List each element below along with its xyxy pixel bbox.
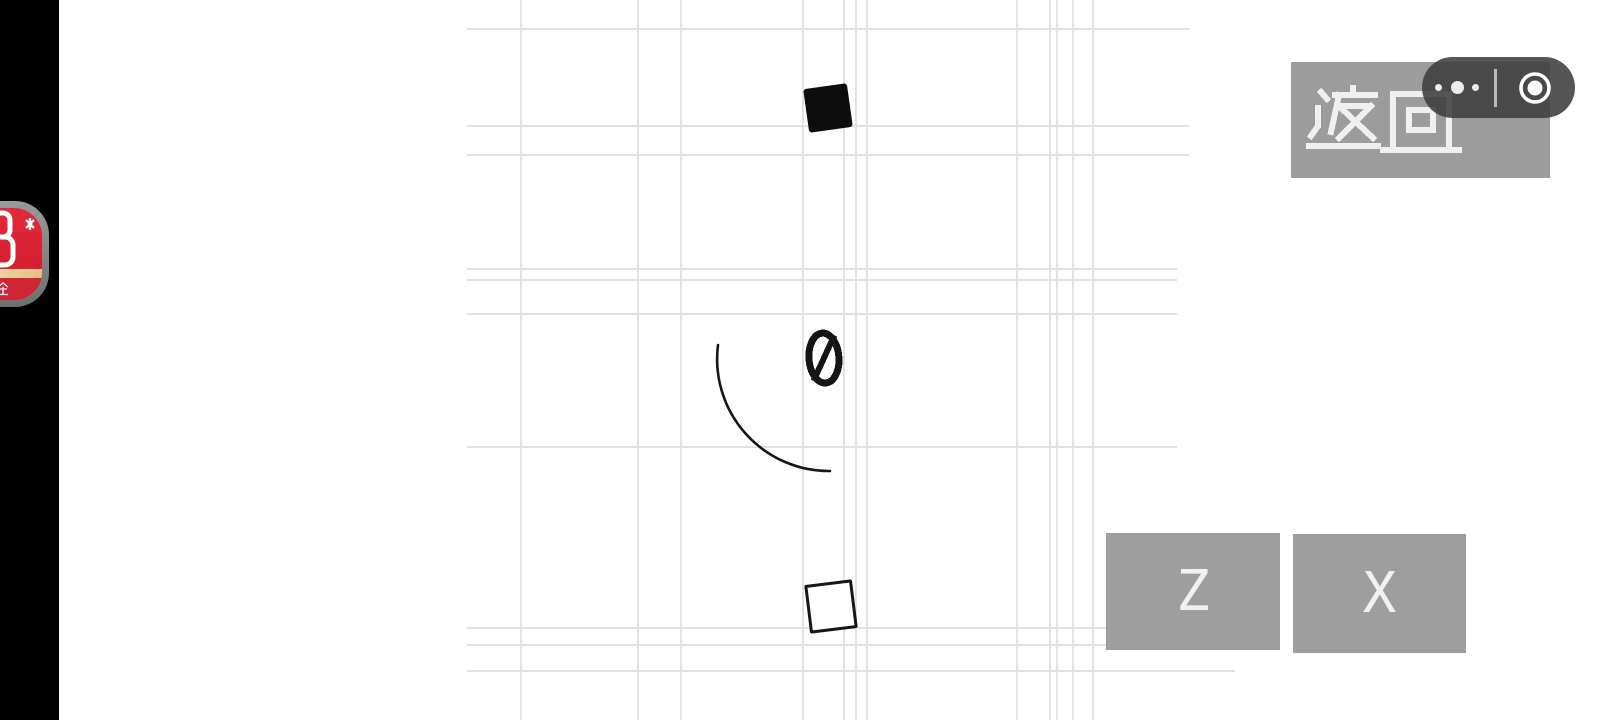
grid-line bbox=[467, 644, 1168, 646]
grid-line bbox=[1092, 0, 1094, 720]
cash-label-strip: 现金 bbox=[0, 278, 42, 300]
target-outline-square bbox=[804, 579, 858, 633]
action-button-x[interactable]: X bbox=[1293, 534, 1466, 653]
more-options-icon[interactable] bbox=[1435, 57, 1479, 118]
grid-line bbox=[866, 0, 868, 720]
grid-line bbox=[467, 28, 1190, 30]
grid-line bbox=[680, 0, 682, 720]
grid-line bbox=[1049, 0, 1051, 720]
falling-block bbox=[803, 83, 853, 133]
grid-line bbox=[467, 154, 1189, 156]
action-button-x-label: X bbox=[1363, 566, 1397, 622]
grid-line bbox=[520, 0, 522, 720]
game-screen: 0 返回 bbox=[0, 0, 1600, 720]
cash-widget[interactable]: 现金 bbox=[0, 201, 49, 307]
grid-line bbox=[467, 670, 1235, 672]
cash-widget-face: 现金 bbox=[0, 208, 42, 300]
grid-line bbox=[467, 279, 1177, 281]
figure-eight-icon bbox=[0, 208, 42, 268]
action-button-z[interactable]: Z bbox=[1106, 533, 1280, 650]
grid-line bbox=[637, 0, 639, 720]
score-digit bbox=[798, 324, 852, 393]
system-capsule[interactable]: ••• bbox=[1422, 57, 1575, 118]
record-indicator-icon[interactable] bbox=[1518, 71, 1552, 105]
gold-band bbox=[0, 269, 42, 278]
grid-line bbox=[1056, 0, 1058, 720]
grid-line bbox=[467, 268, 1177, 270]
sparkle-icon bbox=[26, 218, 34, 230]
grid-line bbox=[1016, 0, 1018, 720]
action-button-z-label: Z bbox=[1176, 564, 1210, 620]
grid-line bbox=[467, 313, 1177, 315]
cash-label-glyphs bbox=[0, 282, 11, 296]
grid-line bbox=[1072, 0, 1074, 720]
capsule-divider bbox=[1494, 69, 1497, 107]
